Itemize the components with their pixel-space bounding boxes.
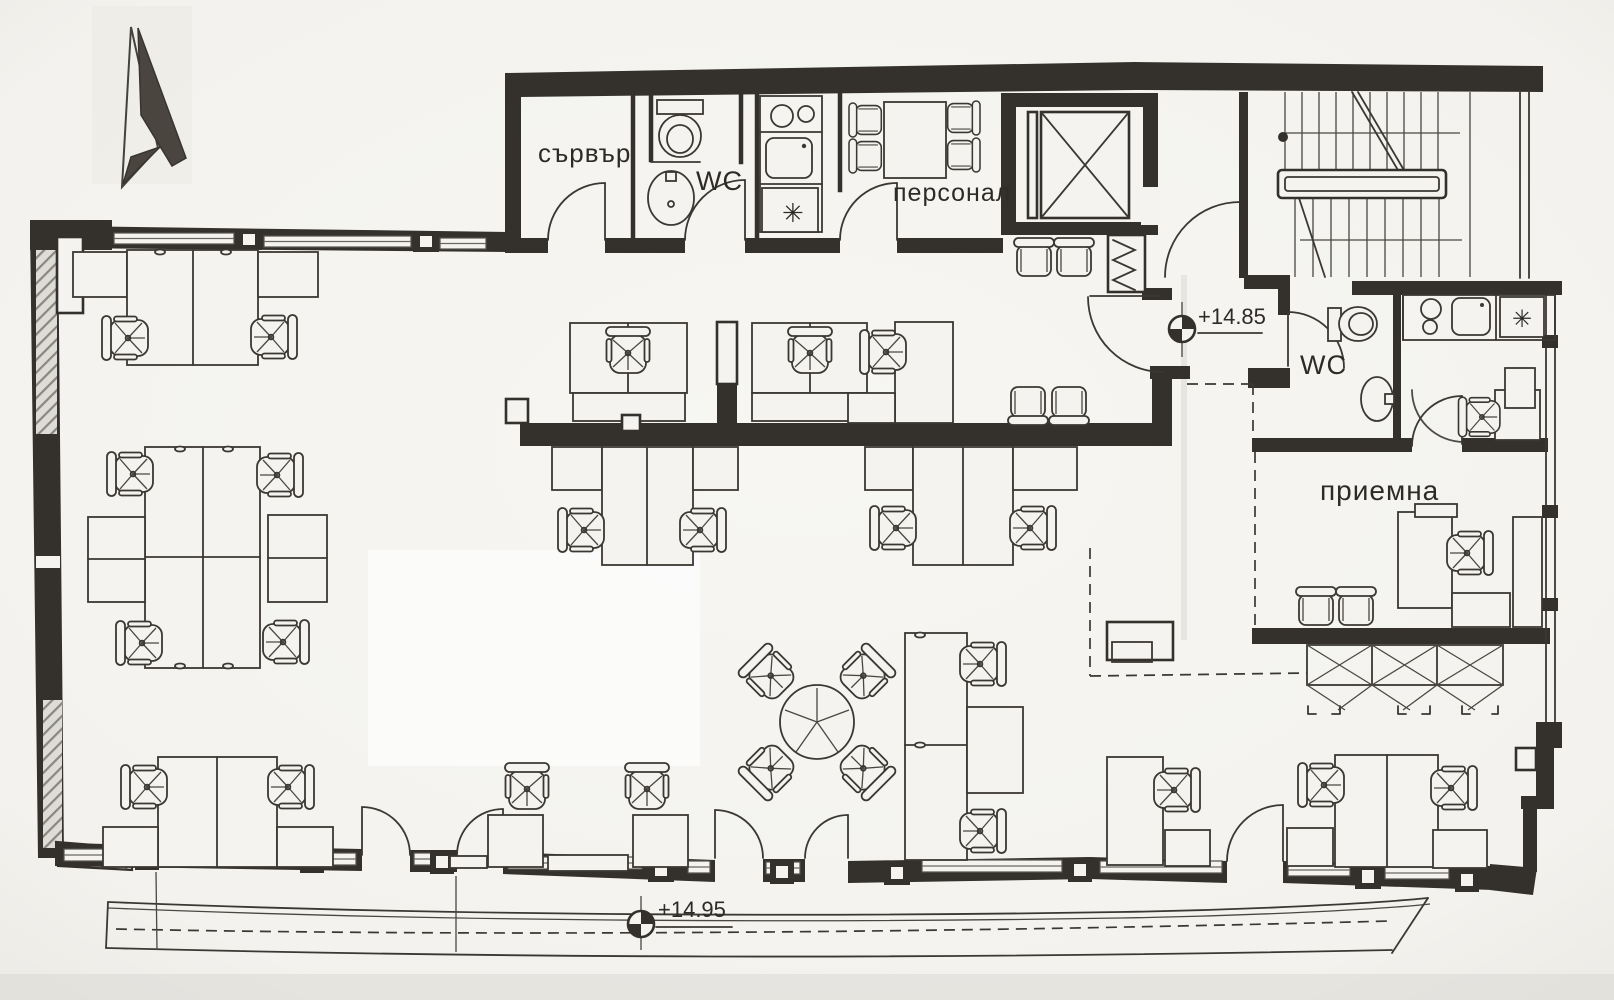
scan-artifact-patch: [368, 550, 700, 766]
elevator-shaft-icon: [1001, 93, 1160, 235]
desk-cluster: [1107, 757, 1210, 866]
kitchen-top-wall: [1352, 281, 1562, 295]
column: [717, 322, 737, 384]
reception-desk: [1398, 512, 1452, 608]
waiting-chair: [1049, 387, 1089, 425]
elevator-door: [1141, 187, 1160, 225]
waiting-chair: [1008, 387, 1048, 425]
fridge-glyph: ✳: [782, 198, 805, 228]
sink-icon: [648, 171, 694, 225]
sink-icon: [1361, 377, 1394, 421]
visitor-chair: [1296, 587, 1336, 625]
kitchen-sink-icon: [1452, 298, 1490, 335]
toilet-icon: [657, 100, 703, 157]
scanned-floor-plan-page: ✳: [0, 0, 1614, 1000]
desk-cluster: [88, 447, 327, 669]
low-cabinet: [1107, 622, 1173, 662]
staff-table: [884, 102, 946, 178]
desk-cluster: [848, 322, 953, 423]
room-label-wc-top: WC: [696, 166, 743, 196]
room-label-server: сървър: [538, 138, 631, 168]
room-label-staff: персонал: [893, 179, 1011, 207]
page-edge-shadow: [0, 974, 1614, 1000]
service-shaft: [1108, 235, 1145, 292]
floor-plan-canvas: ✳: [0, 0, 1614, 1000]
room-label-reception: приемна: [1320, 475, 1439, 506]
room-label-wc-right: WC: [1300, 350, 1347, 380]
cabinet: [1513, 517, 1542, 627]
fridge-icon: ✳: [762, 188, 818, 232]
kitchen-sink-icon: [766, 138, 812, 178]
toilet-icon: [1328, 307, 1377, 341]
fridge-glyph: ✳: [1512, 306, 1533, 333]
level-value: +14.95: [658, 897, 726, 922]
fridge-icon: ✳: [1500, 297, 1544, 337]
waiting-chair: [1054, 238, 1094, 276]
waiting-chair: [1014, 238, 1054, 276]
office-partition-wall: [520, 423, 1163, 446]
desk-cluster: [570, 323, 687, 431]
desk-cluster: [905, 633, 1023, 861]
visitor-chair: [1336, 587, 1376, 625]
level-value: +14.85: [1198, 304, 1266, 329]
